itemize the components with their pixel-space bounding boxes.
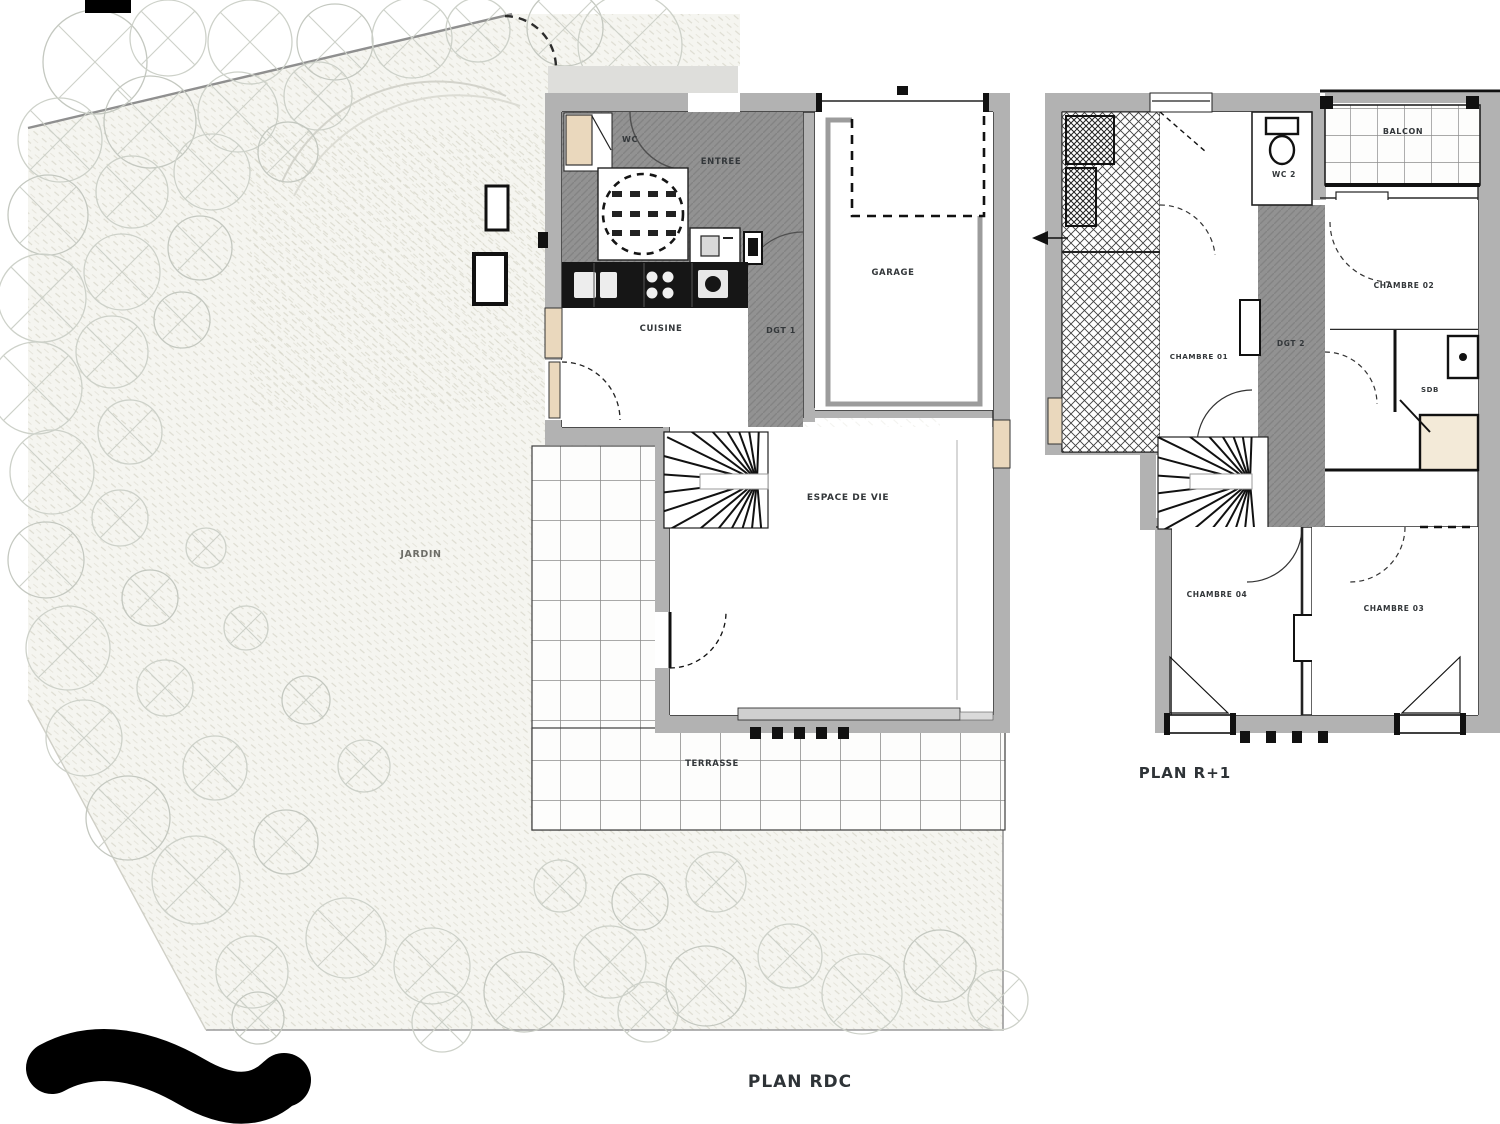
floor-plan-canvas: JARDIN TERRASSE bbox=[0, 0, 1500, 1124]
r1-void-hatch bbox=[1062, 112, 1160, 452]
room-label-espace-de-vie: ESPACE DE VIE bbox=[807, 493, 889, 503]
r1-west-window bbox=[1048, 398, 1062, 444]
entry-door-opening bbox=[688, 93, 740, 112]
kitchen-window bbox=[545, 308, 562, 358]
garage-room bbox=[815, 104, 993, 410]
room-label-balcon: BALCON bbox=[1383, 127, 1423, 136]
garage-door-opening bbox=[820, 93, 985, 112]
entry-walkway bbox=[548, 66, 738, 94]
garage-mezzanine-dashed bbox=[852, 104, 984, 216]
appliance-boxes bbox=[690, 228, 762, 264]
r1-plan: DGT 2 CHAMBRE 01 WC 2 BALCON CHAMBRE 0 bbox=[1032, 91, 1500, 743]
r1-chambre04-room bbox=[1172, 527, 1302, 715]
plan-title-rdc: PLAN RDC bbox=[748, 1072, 852, 1092]
room-label-dgt1: DGT 1 bbox=[766, 326, 796, 335]
survey-mark bbox=[897, 86, 908, 95]
utility-box-2 bbox=[474, 254, 506, 304]
floor-plan-sheet: JARDIN TERRASSE bbox=[0, 0, 1500, 1124]
room-label-entree: ENTREE bbox=[701, 157, 741, 167]
hob-icon bbox=[647, 272, 658, 283]
redaction-blob bbox=[52, 1053, 311, 1107]
rdc-wc-room bbox=[564, 113, 612, 171]
room-label-cuisine: CUISINE bbox=[640, 324, 683, 334]
bathtub-icon bbox=[1420, 415, 1478, 470]
chambre01-closet bbox=[1240, 300, 1260, 355]
r1-chambre02-room bbox=[1330, 200, 1478, 330]
sheet-edge-mark bbox=[85, 0, 131, 13]
kitchen-door-leaf bbox=[549, 362, 560, 418]
room-label-wc: WC bbox=[622, 135, 638, 144]
r1-chambre03-room bbox=[1312, 527, 1478, 715]
room-label-garage: GARAGE bbox=[871, 268, 914, 278]
living-window-east bbox=[993, 420, 1010, 468]
room-label-jardin: JARDIN bbox=[399, 549, 441, 560]
kitchen-counter bbox=[562, 262, 748, 308]
room-label-sdb: SDB bbox=[1421, 386, 1439, 394]
r1-top-window bbox=[1150, 93, 1212, 112]
room-label-chambre02: CHAMBRE 02 bbox=[1374, 281, 1435, 290]
wc-door-leaf bbox=[566, 115, 592, 165]
living-door-gap bbox=[655, 612, 670, 668]
r1-dressing bbox=[1160, 112, 1252, 255]
room-label-chambre03: CHAMBRE 03 bbox=[1364, 604, 1425, 613]
section-mark-rdc bbox=[538, 232, 548, 248]
laundry-closet bbox=[598, 168, 688, 260]
room-label-dgt2: DGT 2 bbox=[1277, 339, 1305, 348]
section-arrow-r1 bbox=[1032, 231, 1048, 245]
sink-icon bbox=[574, 272, 596, 298]
balcony bbox=[1320, 91, 1500, 185]
room-label-terrasse: TERRASSE bbox=[685, 759, 739, 769]
toilet-icon bbox=[1266, 118, 1298, 134]
room-label-chambre01: CHAMBRE 01 bbox=[1170, 352, 1228, 361]
utility-box-1 bbox=[486, 186, 508, 230]
plan-title-r1: PLAN R+1 bbox=[1139, 764, 1232, 782]
room-label-chambre04: CHAMBRE 04 bbox=[1187, 590, 1248, 599]
r1-sdb-room bbox=[1325, 330, 1478, 470]
room-label-wc2: WC 2 bbox=[1272, 170, 1296, 179]
r1-wc2-room bbox=[1252, 112, 1312, 205]
